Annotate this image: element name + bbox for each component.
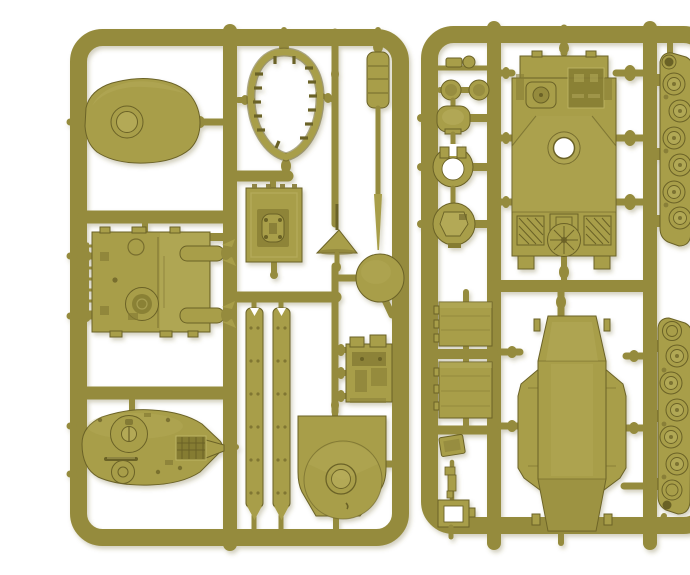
hull-tub-part [501,292,643,543]
engine-hatch-plate-part [246,176,302,279]
rod-a-nub [331,68,339,80]
driver-hatch [526,82,556,108]
radio-panel [568,68,604,108]
turret-base-plate-part [298,399,397,529]
barrel-taper [374,194,382,250]
skirt-strip-left [246,297,263,530]
tub-left-sponson [518,368,540,490]
tool-parts-column [438,434,475,537]
turret-rear-grille [176,436,206,460]
skirt-strip-right [273,297,290,530]
left-sprue [70,30,404,544]
idler-hole [663,501,672,510]
hull-top-deck-part [501,28,643,286]
turret-roof-part [70,79,223,164]
tub-right-sponson [604,368,626,490]
open-hatch-frame [438,500,475,527]
gun-breech-part [337,335,392,403]
turret-top-part [70,399,236,485]
superstructure-deck-part [70,223,236,337]
engine-grille-right [584,216,611,245]
lifting-knob [446,58,462,67]
stowage-box [439,434,466,457]
sprue-photo [40,16,690,559]
armour-plate-lower [434,359,492,427]
armour-plate-upper [434,292,492,350]
pistol-port [112,461,135,484]
machine-gun-piece [445,467,456,498]
cooling-fan [548,224,581,257]
antenna-cone-part [317,204,357,272]
engine-grille-left [517,216,544,245]
sprue-photo-canvas [40,16,690,559]
gun-barrel-part [367,30,389,250]
recuperator-sleeve [367,52,389,108]
gun-shield-ring-part [238,30,333,176]
sprocket-hole [665,58,674,67]
right-sprue [421,28,690,543]
